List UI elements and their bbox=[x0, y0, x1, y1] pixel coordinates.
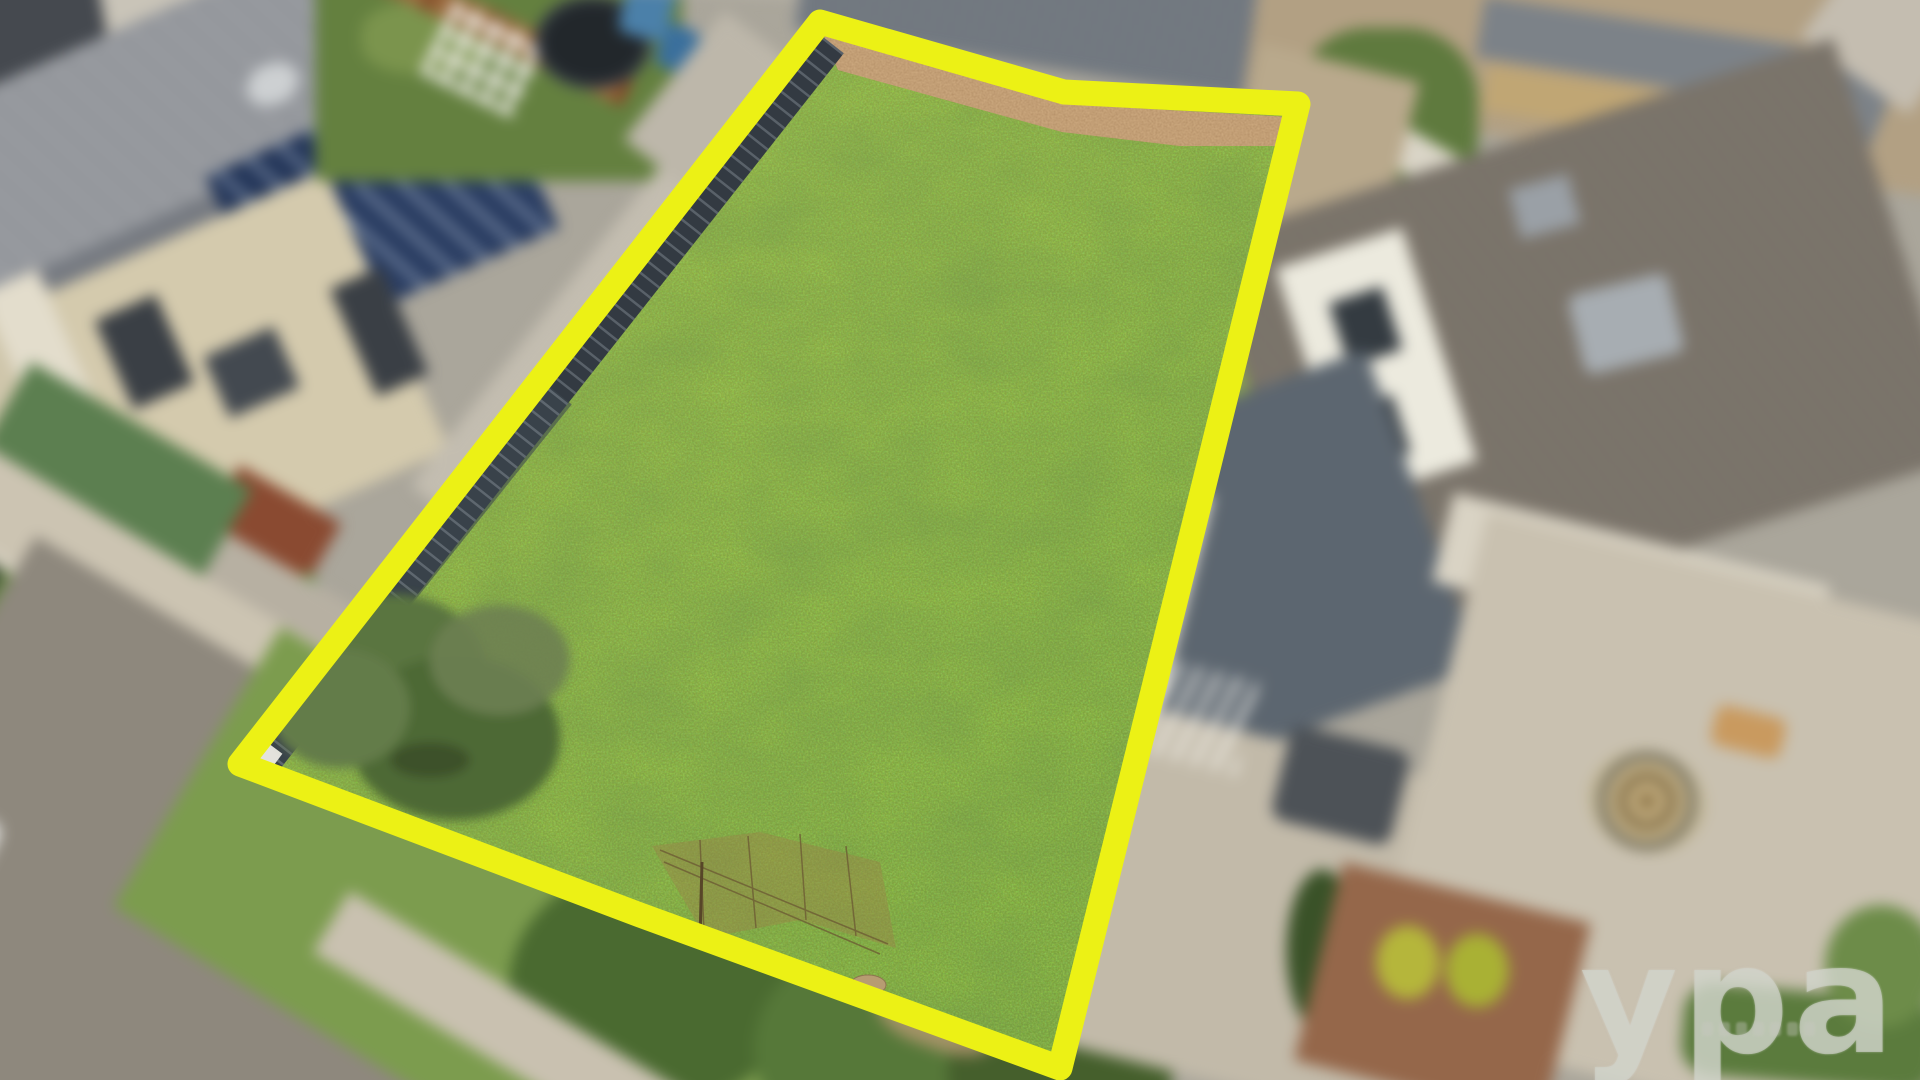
aerial-photo: ypa bbox=[0, 0, 1920, 1080]
ypa-logo-watermark: ypa bbox=[1580, 926, 1898, 1076]
watermark-subtext-blur bbox=[1702, 1022, 1815, 1036]
